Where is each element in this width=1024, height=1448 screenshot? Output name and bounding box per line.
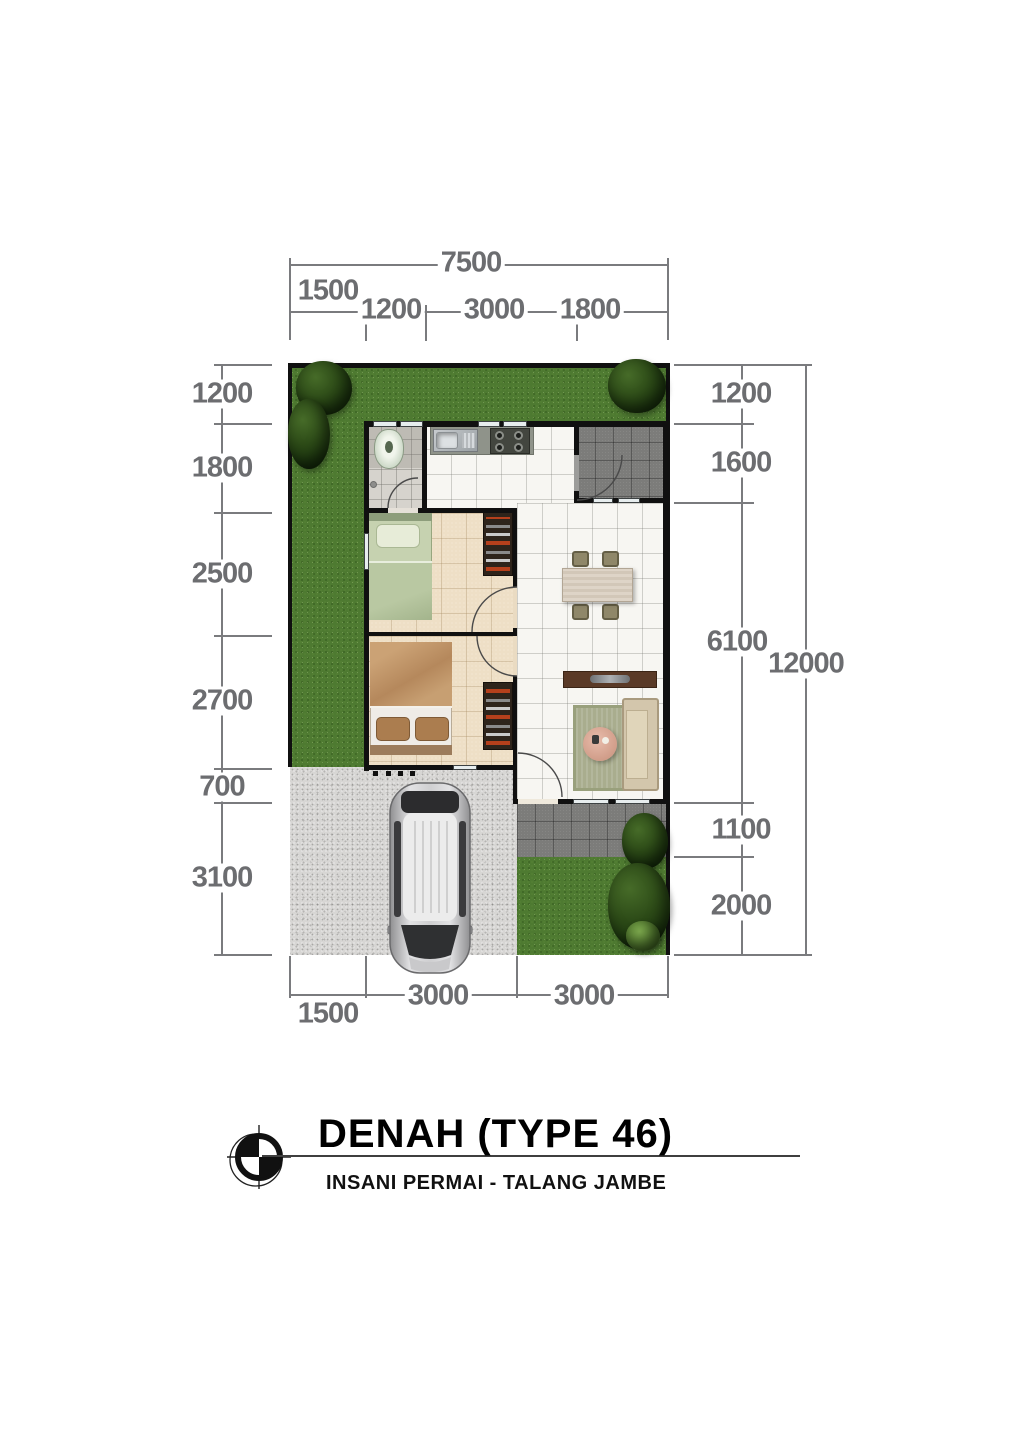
- tree: [288, 399, 330, 469]
- dim-tick: [667, 956, 669, 998]
- dim-tick: [214, 954, 272, 956]
- dim-label: 1600: [708, 449, 775, 478]
- dim-tick: [674, 502, 754, 504]
- dim-label: 700: [196, 773, 247, 802]
- dim-tick: [214, 364, 272, 366]
- dim-tick: [674, 856, 754, 858]
- dim-label: 2700: [189, 687, 256, 716]
- dim-label: 3000: [461, 296, 528, 325]
- dim-label: 1500: [295, 277, 362, 306]
- dim-tick: [365, 956, 367, 998]
- dim-label: 1100: [709, 816, 774, 845]
- dim-label: 2000: [708, 892, 775, 921]
- dim-label: 1200: [358, 296, 425, 325]
- tree: [608, 359, 666, 413]
- drawing-subtitle: INSANI PERMAI - TALANG JAMBE: [326, 1172, 666, 1195]
- dim-tick: [289, 956, 291, 998]
- dim-tick: [214, 423, 272, 425]
- dim-label: 7500: [438, 249, 505, 278]
- dim-label: 2500: [189, 560, 256, 589]
- drawing-title: DENAH (TYPE 46): [318, 1112, 673, 1157]
- dim-label: 1800: [557, 296, 624, 325]
- crosshair-target-icon: [226, 1124, 292, 1190]
- dim-label: 1800: [189, 454, 256, 483]
- floorplan-sheet: 7500 1500 1200 3000 1800 1200 1800 2500 …: [0, 0, 1024, 1448]
- dim-tick: [214, 635, 272, 637]
- dim-tick: [289, 258, 291, 340]
- dim-label: 12000: [765, 650, 847, 679]
- dim-label: 1200: [189, 380, 256, 409]
- dim-tick: [667, 258, 669, 340]
- dim-tick: [674, 364, 812, 366]
- dim-label: 3100: [189, 864, 256, 893]
- dim-label: 6100: [704, 628, 771, 657]
- dim-tick: [674, 423, 754, 425]
- dim-label: 1200: [708, 380, 775, 409]
- dim-label: 3000: [551, 982, 618, 1011]
- shrub: [626, 921, 660, 951]
- dim-label: 1500: [295, 1000, 362, 1029]
- dim-label: 3000: [405, 982, 472, 1011]
- door-swing-arcs: [290, 365, 668, 955]
- car: [385, 777, 475, 977]
- floor-plan: [290, 365, 668, 955]
- dim-tick: [516, 956, 518, 998]
- tree: [622, 813, 668, 869]
- dim-tick: [674, 954, 812, 956]
- dim-tick: [214, 512, 272, 514]
- dim-tick: [674, 802, 754, 804]
- dim-tick: [425, 305, 427, 341]
